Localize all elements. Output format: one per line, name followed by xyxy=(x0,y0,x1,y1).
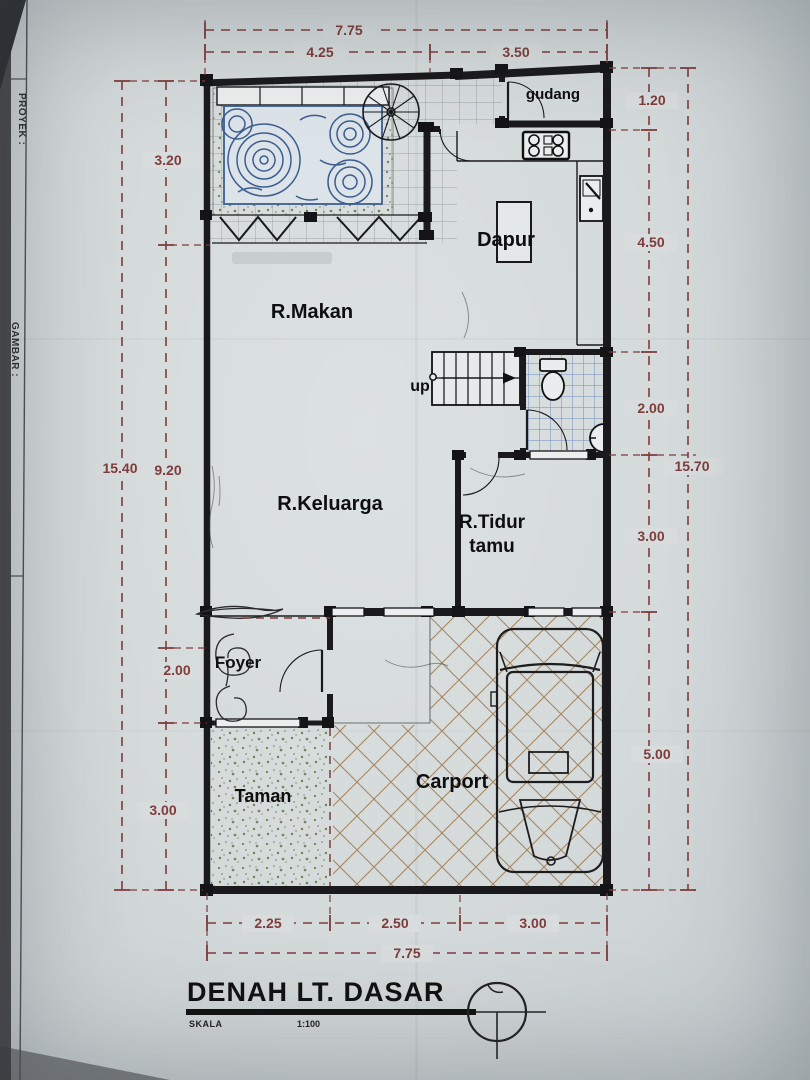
stair-arrow-start xyxy=(430,374,436,380)
dim-right-span3: 2.00 xyxy=(637,400,664,416)
margin-label-gambar: GAMBAR : xyxy=(9,322,20,377)
dim-right-overall: 15.70 xyxy=(674,458,709,474)
margin-strip: PROYEK : GAMBAR : xyxy=(9,0,27,1080)
stove-icon xyxy=(523,132,569,159)
dim-top-left-span: 4.25 xyxy=(306,44,333,60)
dim-right-span4: 3.00 xyxy=(637,528,664,544)
drawing-title: DENAH LT. DASAR xyxy=(187,977,445,1007)
dim-bottom-span1: 2.25 xyxy=(254,915,281,931)
room-label-gudang: gudang xyxy=(526,86,580,103)
pond-garden xyxy=(213,87,393,215)
dim-left-span1: 3.20 xyxy=(154,152,181,168)
scale-label: SKALA xyxy=(189,1019,223,1029)
dim-top-overall: 7.75 xyxy=(335,22,362,38)
room-label-taman: Taman xyxy=(235,786,292,806)
margin-label-proyek: PROYEK : xyxy=(16,93,27,145)
faded-text-smudge xyxy=(232,252,332,264)
room-label-r-tidur-line1: R.Tidur xyxy=(459,512,526,533)
room-label-r-makan: R.Makan xyxy=(271,301,353,323)
room-label-r-keluarga: R.Keluarga xyxy=(277,493,383,515)
pond xyxy=(224,106,382,204)
dim-right-span5: 5.00 xyxy=(643,746,670,762)
scanned-floorplan-sheet: 7.75 4.25 3.50 2.25 2.50 3.00 7.75 15.40… xyxy=(0,0,810,1080)
dim-top-right-span: 3.50 xyxy=(502,44,529,60)
dim-right-span2: 4.50 xyxy=(637,234,664,250)
room-label-r-tidur-line2: tamu xyxy=(469,536,514,557)
entrance-door-arc xyxy=(280,650,322,692)
north-symbol-icon xyxy=(468,983,526,1059)
title-underline xyxy=(186,1009,476,1015)
kitchen-sink-icon xyxy=(580,176,603,221)
carport-area xyxy=(330,616,603,886)
toilet-icon xyxy=(540,359,566,400)
room-label-foyer: Foyer xyxy=(215,653,262,672)
dim-left-span4: 3.00 xyxy=(149,802,176,818)
room-label-dapur: Dapur xyxy=(477,229,535,251)
room-label-carport: Carport xyxy=(416,771,489,793)
dim-left-span3: 2.00 xyxy=(163,662,190,678)
dim-right-span1: 1.20 xyxy=(638,92,665,108)
dim-bottom-span3: 3.00 xyxy=(519,915,546,931)
dim-left-span2: 9.20 xyxy=(154,462,181,478)
dim-bottom-span2: 2.50 xyxy=(381,915,408,931)
dim-left-overall: 15.40 xyxy=(102,460,137,476)
garden-taman xyxy=(211,727,327,886)
floor-plan-drawing: 7.75 4.25 3.50 2.25 2.50 3.00 7.75 15.40… xyxy=(0,0,810,1080)
stairs-up xyxy=(430,352,520,405)
dim-bottom-overall: 7.75 xyxy=(393,945,420,961)
room-label-up: up xyxy=(410,378,430,395)
scale-value: 1:100 xyxy=(297,1019,320,1029)
title-block: DENAH LT. DASAR SKALA 1:100 xyxy=(186,977,546,1059)
